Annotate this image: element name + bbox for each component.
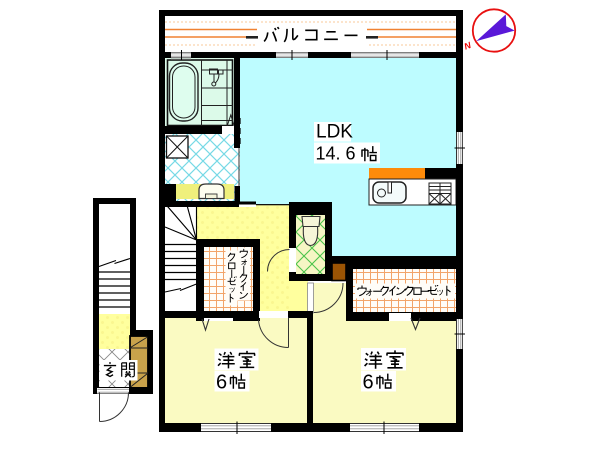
svg-text:LDK: LDK xyxy=(316,122,353,143)
svg-text:6: 6 xyxy=(363,372,374,394)
svg-text:14. 6: 14. 6 xyxy=(316,144,356,164)
svg-text:6: 6 xyxy=(216,372,227,394)
